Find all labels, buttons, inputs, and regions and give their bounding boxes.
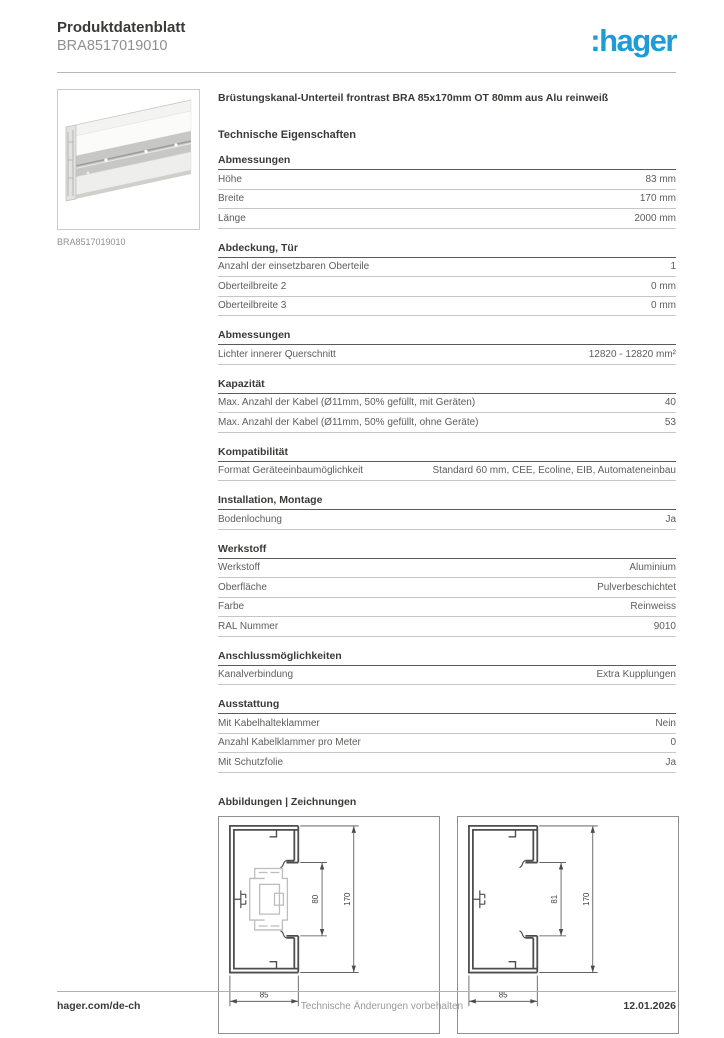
- spec-label: Format Geräteeinbaumöglichkeit: [218, 464, 363, 477]
- spec-sections: AbmessungenHöhe83 mmBreite170 mmLänge200…: [218, 154, 676, 773]
- footer-notice: Technische Änderungen vorbehalten: [301, 1001, 463, 1012]
- spec-label: Mit Kabelhalteklammer: [218, 717, 320, 730]
- product-reference: BRA8517019010: [57, 37, 185, 55]
- spec-row: Breite170 mm: [218, 190, 676, 210]
- spec-label: Max. Anzahl der Kabel (Ø11mm, 50% gefüll…: [218, 396, 475, 409]
- spec-value: 9010: [646, 620, 676, 633]
- spec-label: Werkstoff: [218, 561, 260, 574]
- spec-value: Ja: [657, 756, 676, 769]
- spec-label: Höhe: [218, 173, 242, 186]
- spec-label: Kanalverbindung: [218, 668, 293, 681]
- spec-label: Anzahl der einsetzbaren Oberteile: [218, 260, 369, 273]
- product-image: [57, 89, 200, 230]
- spec-section: WerkstoffWerkstoffAluminiumOberflächePul…: [218, 543, 676, 637]
- drawings-heading: Abbildungen | Zeichnungen: [218, 796, 676, 808]
- spec-section-heading: Installation, Montage: [218, 494, 676, 510]
- spec-section-heading: Werkstoff: [218, 543, 676, 559]
- product-image-caption: BRA8517019010: [57, 237, 200, 247]
- tech-properties-title: Technische Eigenschaften: [218, 129, 676, 141]
- spec-row: Max. Anzahl der Kabel (Ø11mm, 50% gefüll…: [218, 394, 676, 414]
- spec-value: 40: [657, 396, 676, 409]
- product-image-column: BRA8517019010: [57, 89, 200, 1034]
- document-type: Produktdatenblatt: [57, 19, 185, 37]
- product-title: Brüstungskanal-Unterteil frontrast BRA 8…: [218, 91, 676, 105]
- spec-label: Oberfläche: [218, 581, 267, 594]
- spec-section-heading: Abdeckung, Tür: [218, 242, 676, 258]
- title-block: Produktdatenblatt BRA8517019010: [57, 19, 185, 55]
- spec-section-heading: Kompatibilität: [218, 446, 676, 462]
- spec-value: 0 mm: [643, 299, 676, 312]
- spec-section: AusstattungMit KabelhalteklammerNeinAnza…: [218, 698, 676, 773]
- spec-value: 0: [662, 736, 676, 749]
- device-symbol: [250, 868, 288, 929]
- spec-label: Oberteilbreite 3: [218, 299, 286, 312]
- spec-value: Nein: [647, 717, 676, 730]
- spec-label: Oberteilbreite 2: [218, 280, 286, 293]
- spec-row: BodenlochungJa: [218, 510, 676, 530]
- spec-row: Oberteilbreite 30 mm: [218, 297, 676, 317]
- spec-label: RAL Nummer: [218, 620, 278, 633]
- spec-value: 0 mm: [643, 280, 676, 293]
- spec-section-heading: Anschlussmöglichkeiten: [218, 650, 676, 666]
- dim-label-inner: 80: [311, 894, 320, 903]
- spec-value: Standard 60 mm, CEE, Ecoline, EIB, Autom…: [425, 464, 676, 477]
- spec-row: Oberteilbreite 20 mm: [218, 277, 676, 297]
- spec-label: Mit Schutzfolie: [218, 756, 283, 769]
- spec-section-heading: Abmessungen: [218, 154, 676, 170]
- spec-row: Anzahl Kabelklammer pro Meter0: [218, 734, 676, 754]
- spec-row: WerkstoffAluminium: [218, 559, 676, 579]
- spec-row: KanalverbindungExtra Kupplungen: [218, 666, 676, 686]
- spec-section-heading: Ausstattung: [218, 698, 676, 714]
- spec-section-heading: Kapazität: [218, 378, 676, 394]
- footer-website: hager.com/de-ch: [57, 1000, 140, 1012]
- spec-row: Max. Anzahl der Kabel (Ø11mm, 50% gefüll…: [218, 413, 676, 433]
- spec-row: Format GeräteeinbaumöglichkeitStandard 6…: [218, 462, 676, 482]
- spec-value: Pulverbeschichtet: [589, 581, 676, 594]
- spec-label: Anzahl Kabelklammer pro Meter: [218, 736, 361, 749]
- spec-value: 2000 mm: [626, 212, 676, 225]
- spec-row: Mit KabelhalteklammerNein: [218, 714, 676, 734]
- spec-section: AbmessungenLichter innerer Querschnitt12…: [218, 329, 676, 365]
- main-content: BRA8517019010 Brüstungskanal-Unterteil f…: [0, 73, 724, 1034]
- spec-row: Höhe83 mm: [218, 170, 676, 190]
- spec-section: KompatibilitätFormat Geräteeinbaumöglich…: [218, 446, 676, 482]
- spec-row: OberflächePulverbeschichtet: [218, 578, 676, 598]
- spec-value: Reinweiss: [622, 600, 676, 613]
- spec-value: 12820 - 12820 mm²: [581, 348, 676, 361]
- footer-date: 12.01.2026: [623, 1000, 676, 1012]
- spec-section: Installation, MontageBodenlochungJa: [218, 494, 676, 530]
- spec-value: 170 mm: [632, 192, 676, 205]
- spec-value: Extra Kupplungen: [588, 668, 676, 681]
- spec-row: RAL Nummer9010: [218, 617, 676, 637]
- dim-label-outer: 170: [582, 892, 591, 906]
- spec-row: Mit SchutzfolieJa: [218, 753, 676, 773]
- spec-label: Farbe: [218, 600, 244, 613]
- dim-label-outer: 170: [343, 892, 352, 906]
- spec-value: Aluminium: [621, 561, 676, 574]
- spec-row: Anzahl der einsetzbaren Oberteile1: [218, 258, 676, 278]
- spec-section: Abdeckung, TürAnzahl der einsetzbaren Ob…: [218, 242, 676, 317]
- spec-section-heading: Abmessungen: [218, 329, 676, 345]
- spec-section: AbmessungenHöhe83 mmBreite170 mmLänge200…: [218, 154, 676, 229]
- spec-row: Länge2000 mm: [218, 209, 676, 229]
- page-header: Produktdatenblatt BRA8517019010 :hager: [0, 0, 724, 59]
- spec-label: Lichter innerer Querschnitt: [218, 348, 336, 361]
- spec-section: KapazitätMax. Anzahl der Kabel (Ø11mm, 5…: [218, 378, 676, 433]
- dim-label-inner: 81: [550, 894, 559, 903]
- spec-value: Ja: [657, 513, 676, 526]
- spec-value: 1: [662, 260, 676, 273]
- spec-column: Brüstungskanal-Unterteil frontrast BRA 8…: [218, 89, 676, 1034]
- product-render-trunking-profile: [58, 90, 199, 229]
- spec-value: 83 mm: [637, 173, 676, 186]
- spec-value: 53: [657, 416, 676, 429]
- spec-label: Max. Anzahl der Kabel (Ø11mm, 50% gefüll…: [218, 416, 479, 429]
- spec-section: AnschlussmöglichkeitenKanalverbindungExt…: [218, 650, 676, 686]
- spec-label: Bodenlochung: [218, 513, 282, 526]
- spec-label: Länge: [218, 212, 246, 225]
- spec-label: Breite: [218, 192, 244, 205]
- spec-row: Lichter innerer Querschnitt12820 - 12820…: [218, 345, 676, 365]
- spec-row: FarbeReinweiss: [218, 598, 676, 618]
- page-footer: hager.com/de-ch Technische Änderungen vo…: [57, 991, 676, 1012]
- hager-logo: :hager: [590, 23, 676, 59]
